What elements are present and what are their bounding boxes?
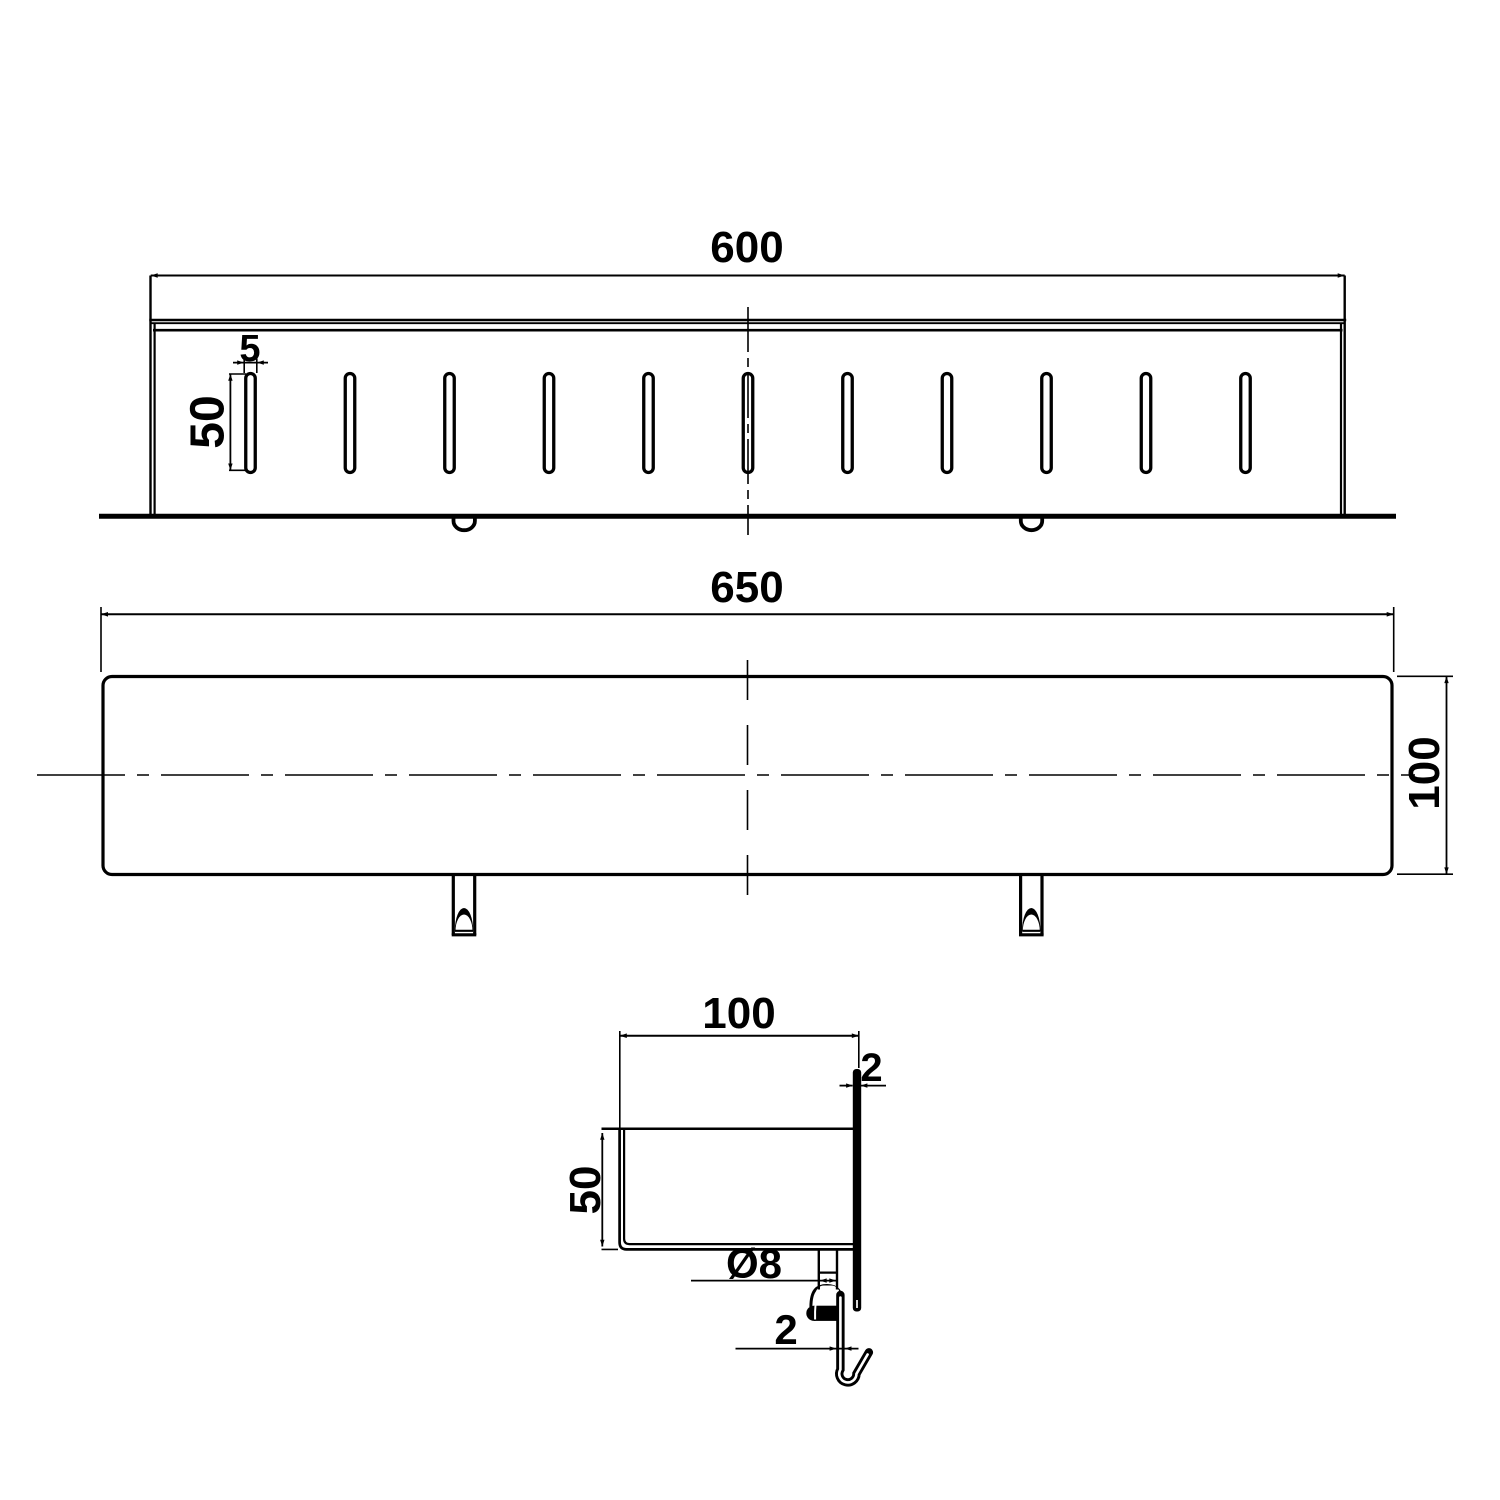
- svg-text:100: 100: [702, 989, 775, 1038]
- svg-text:650: 650: [710, 563, 783, 612]
- svg-text:2: 2: [774, 1306, 797, 1353]
- svg-text:50: 50: [182, 395, 235, 448]
- svg-text:100: 100: [1400, 736, 1449, 809]
- svg-text:600: 600: [710, 223, 783, 272]
- svg-text:2: 2: [860, 1046, 882, 1090]
